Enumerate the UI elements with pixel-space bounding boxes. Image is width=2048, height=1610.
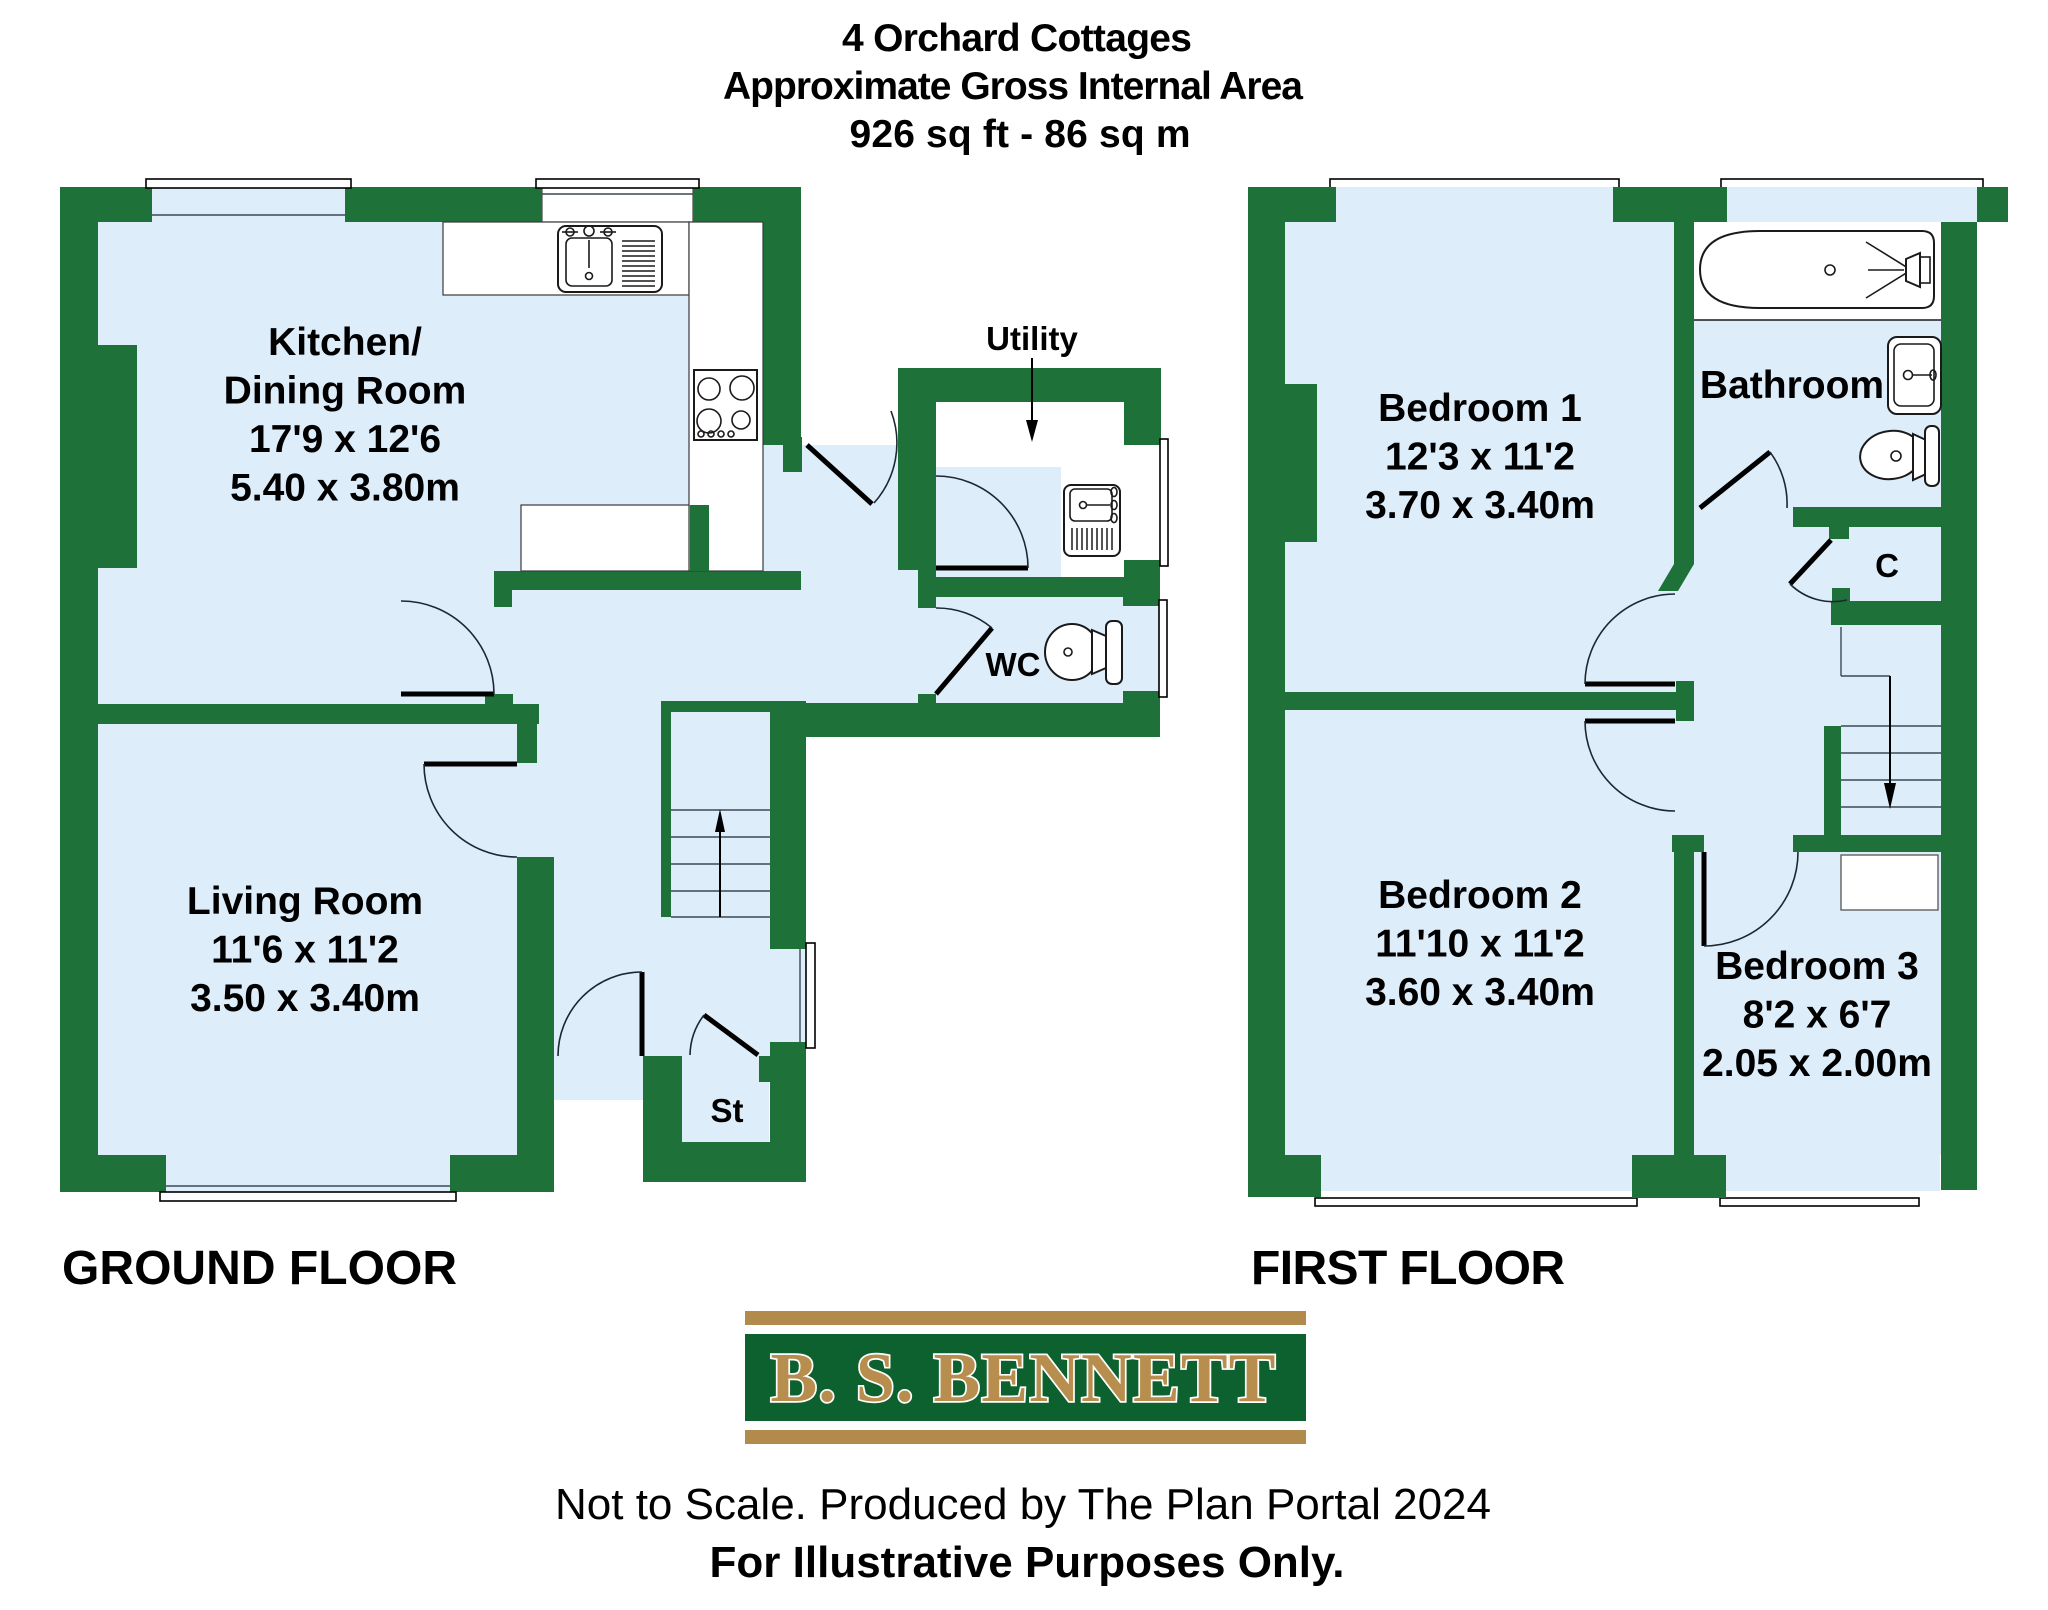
svg-text:Bedroom 3: Bedroom 3 (1715, 945, 1919, 988)
svg-text:Utility: Utility (986, 320, 1078, 357)
svg-text:Approximate Gross Internal Are: Approximate Gross Internal Area (723, 65, 1303, 108)
svg-text:Bedroom 2: Bedroom 2 (1378, 874, 1582, 917)
svg-text:11'6 x 11'2: 11'6 x 11'2 (211, 929, 399, 972)
svg-text:For Illustrative Purposes Only: For Illustrative Purposes Only. (710, 1538, 1345, 1587)
svg-text:3.70 x 3.40m: 3.70 x 3.40m (1365, 484, 1595, 527)
svg-text:12'3 x 11'2: 12'3 x 11'2 (1385, 436, 1575, 479)
svg-text:8'2 x 6'7: 8'2 x 6'7 (1743, 994, 1892, 1037)
svg-text:St: St (711, 1092, 744, 1129)
svg-text:B. S. BENNETT: B. S. BENNETT (771, 1340, 1276, 1417)
svg-text:WC: WC (986, 646, 1041, 683)
svg-text:FIRST FLOOR: FIRST FLOOR (1251, 1242, 1565, 1295)
svg-text:4 Orchard Cottages: 4 Orchard Cottages (842, 17, 1192, 60)
svg-text:3.60 x 3.40m: 3.60 x 3.40m (1365, 971, 1595, 1014)
svg-text:Dining Room: Dining Room (224, 370, 467, 413)
svg-text:Living Room: Living Room (187, 880, 423, 923)
svg-text:Not to Scale. Produced by The: Not to Scale. Produced by The Plan Porta… (555, 1480, 1491, 1529)
svg-text:Bedroom 1: Bedroom 1 (1378, 387, 1582, 430)
svg-text:5.40 x 3.80m: 5.40 x 3.80m (230, 467, 460, 510)
svg-text:Bathroom: Bathroom (1700, 364, 1884, 407)
svg-text:C: C (1875, 547, 1899, 584)
svg-text:17'9 x 12'6: 17'9 x 12'6 (249, 418, 441, 461)
svg-text:Kitchen/: Kitchen/ (268, 321, 422, 364)
svg-text:926 sq ft - 86 sq m: 926 sq ft - 86 sq m (850, 113, 1191, 156)
svg-text:11'10 x 11'2: 11'10 x 11'2 (1375, 923, 1584, 966)
svg-text:3.50 x 3.40m: 3.50 x 3.40m (190, 977, 420, 1020)
svg-text:2.05 x 2.00m: 2.05 x 2.00m (1702, 1042, 1932, 1085)
svg-text:GROUND FLOOR: GROUND FLOOR (62, 1242, 457, 1295)
